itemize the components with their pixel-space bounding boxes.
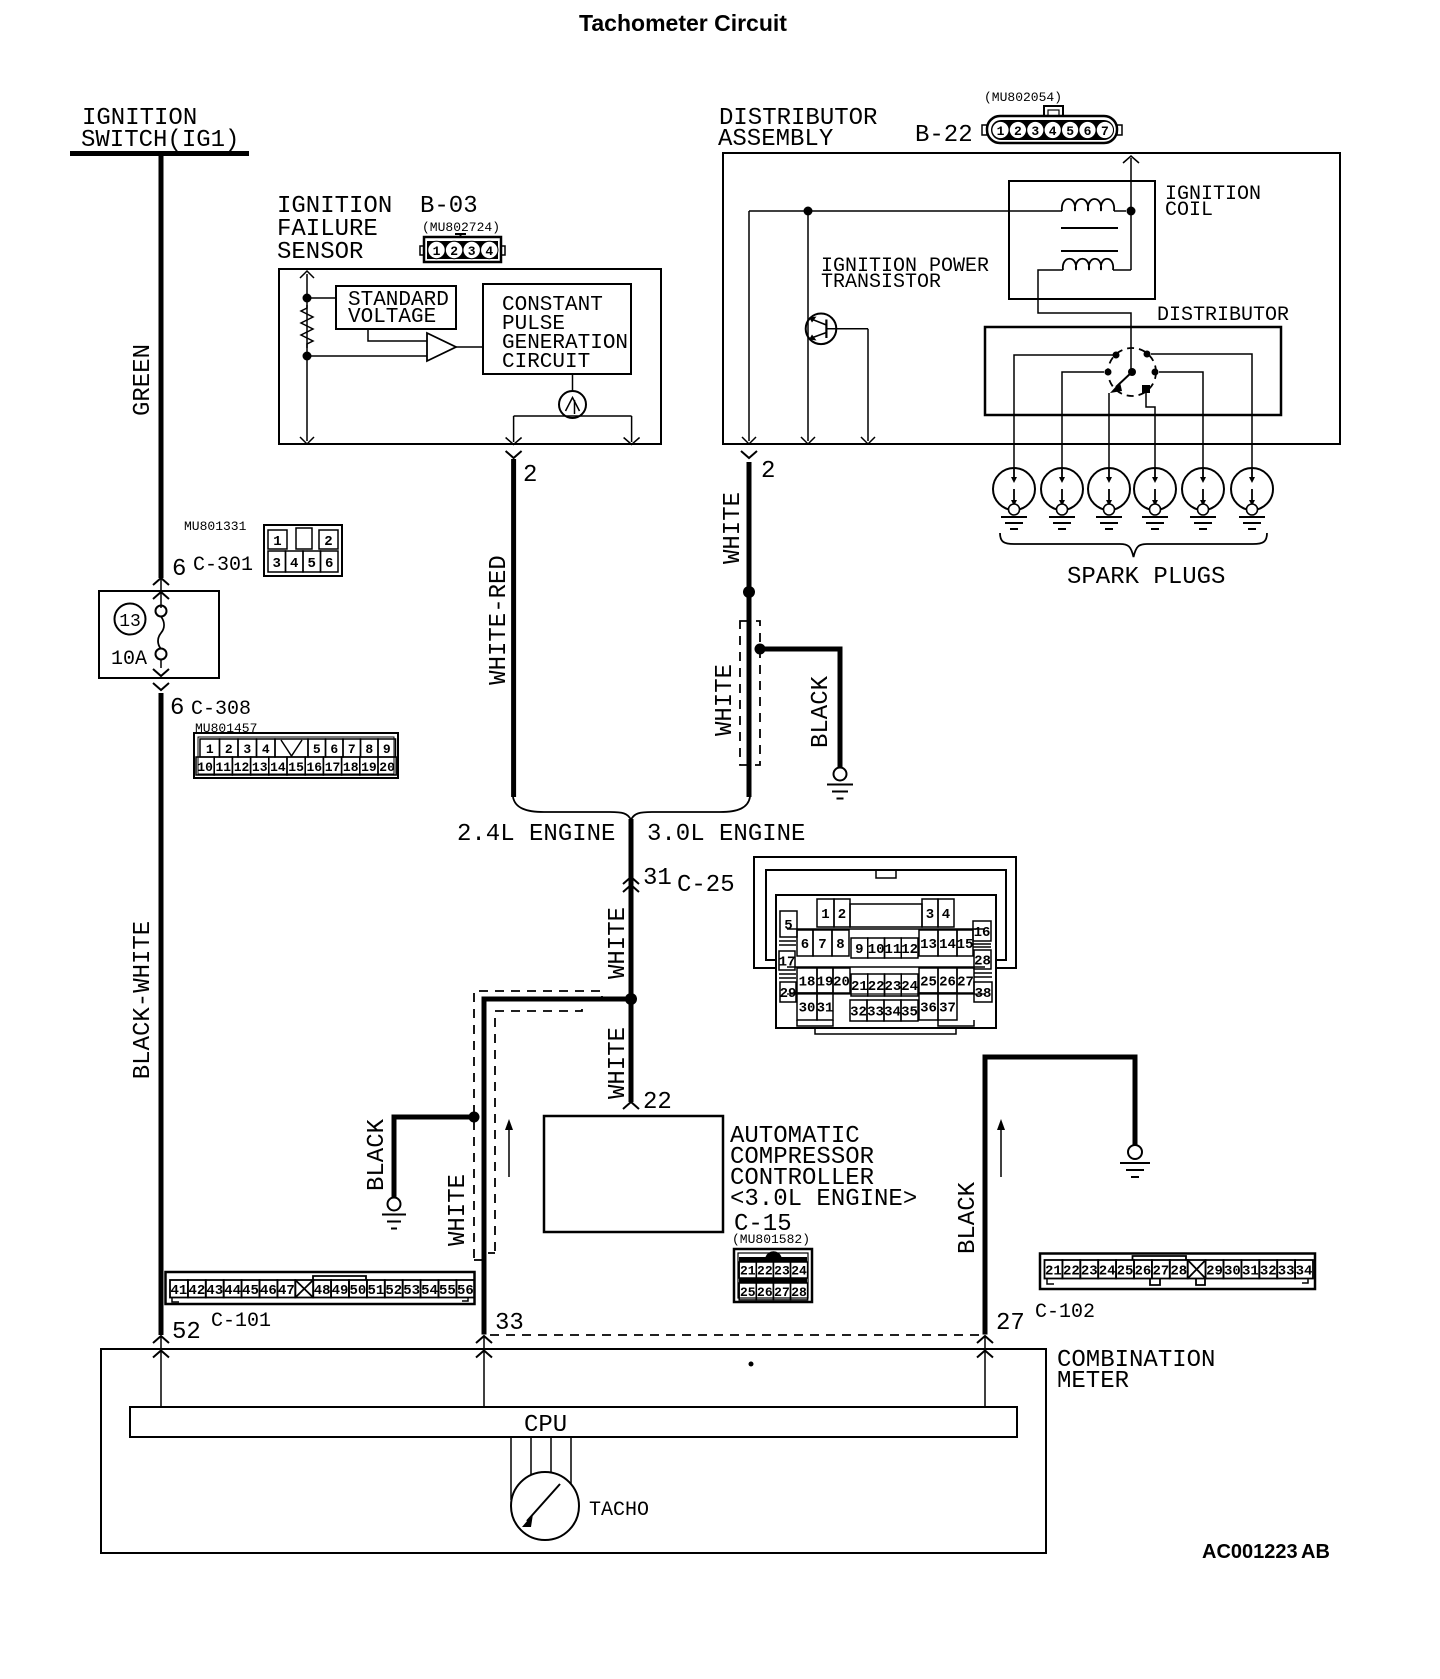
svg-text:DISTRIBUTOR: DISTRIBUTOR: [1157, 304, 1289, 327]
svg-text:22: 22: [868, 979, 885, 995]
svg-text:8: 8: [836, 937, 844, 953]
svg-text:28: 28: [1170, 1264, 1187, 1280]
svg-text:9: 9: [383, 742, 391, 757]
svg-text:24: 24: [1099, 1264, 1116, 1280]
svg-text:3: 3: [243, 742, 251, 757]
svg-text:17: 17: [325, 760, 341, 775]
svg-text:C-301: C-301: [193, 554, 253, 577]
svg-text:45: 45: [242, 1283, 259, 1299]
svg-text:5: 5: [1066, 124, 1074, 139]
svg-text:56: 56: [457, 1283, 474, 1299]
svg-text:TRANSISTOR: TRANSISTOR: [821, 271, 941, 294]
svg-text:11: 11: [884, 942, 901, 958]
svg-text:15: 15: [957, 937, 974, 953]
svg-text:2: 2: [761, 458, 775, 485]
svg-text:24: 24: [901, 979, 918, 995]
svg-text:23: 23: [774, 1264, 790, 1279]
svg-text:BLACK: BLACK: [808, 675, 835, 748]
svg-text:METER: METER: [1057, 1368, 1129, 1395]
svg-text:ASSEMBLY: ASSEMBLY: [718, 126, 833, 153]
svg-text:34: 34: [1296, 1264, 1313, 1280]
svg-text:22: 22: [643, 1089, 672, 1116]
svg-text:2: 2: [324, 534, 332, 550]
svg-text:1: 1: [273, 534, 281, 550]
svg-text:18: 18: [343, 760, 359, 775]
svg-text:CPU: CPU: [524, 1412, 567, 1439]
svg-text:35: 35: [901, 1005, 918, 1021]
svg-text:31: 31: [817, 1001, 834, 1017]
svg-text:6: 6: [170, 695, 184, 722]
svg-text:10A: 10A: [111, 648, 147, 671]
svg-text:22: 22: [1063, 1264, 1080, 1280]
svg-text:33: 33: [867, 1005, 884, 1021]
svg-text:32: 32: [1260, 1264, 1277, 1280]
svg-text:27: 27: [996, 1310, 1025, 1337]
svg-text:<3.0L ENGINE>: <3.0L ENGINE>: [730, 1186, 917, 1213]
svg-text:16: 16: [306, 760, 322, 775]
svg-text:4: 4: [1049, 124, 1057, 139]
svg-text:50: 50: [350, 1283, 367, 1299]
svg-text:WHITE: WHITE: [605, 1027, 632, 1099]
svg-text:C-101: C-101: [211, 1310, 271, 1333]
svg-text:6: 6: [172, 556, 186, 583]
svg-text:11: 11: [215, 760, 231, 775]
svg-text:18: 18: [799, 975, 816, 991]
svg-text:53: 53: [403, 1283, 420, 1299]
svg-text:32: 32: [850, 1005, 867, 1021]
svg-text:WHITE: WHITE: [605, 907, 632, 979]
svg-text:3: 3: [1031, 124, 1039, 139]
svg-text:5: 5: [307, 556, 315, 572]
svg-text:2: 2: [225, 742, 233, 757]
svg-text:30: 30: [1224, 1264, 1241, 1280]
svg-text:4: 4: [262, 742, 270, 757]
svg-text:21: 21: [851, 979, 868, 995]
svg-text:20: 20: [379, 760, 395, 775]
svg-text:21: 21: [740, 1264, 756, 1279]
svg-text:21: 21: [1045, 1264, 1062, 1280]
svg-text:7: 7: [1101, 124, 1109, 139]
svg-text:4: 4: [942, 907, 950, 923]
svg-text:30: 30: [799, 1001, 816, 1017]
svg-text:2: 2: [523, 462, 537, 489]
svg-text:C-308: C-308: [191, 698, 251, 721]
svg-text:19: 19: [361, 760, 377, 775]
svg-text:19: 19: [817, 975, 834, 991]
svg-text:31: 31: [643, 865, 672, 892]
svg-text:GREEN: GREEN: [130, 344, 157, 416]
svg-text:7: 7: [348, 742, 356, 757]
svg-text:B-03: B-03: [420, 193, 478, 220]
svg-text:46: 46: [260, 1283, 277, 1299]
svg-text:5: 5: [784, 918, 792, 934]
svg-text:29: 29: [1206, 1264, 1223, 1280]
svg-text:15: 15: [288, 760, 304, 775]
svg-text:25: 25: [920, 975, 937, 991]
svg-text:14: 14: [270, 760, 286, 775]
svg-text:52: 52: [385, 1283, 402, 1299]
svg-text:14: 14: [939, 937, 956, 953]
svg-text:26: 26: [1135, 1264, 1152, 1280]
svg-text:SWITCH(IG1): SWITCH(IG1): [81, 127, 239, 154]
svg-text:1: 1: [997, 124, 1005, 139]
svg-text:WHITE: WHITE: [712, 664, 739, 736]
svg-text:C-102: C-102: [1035, 1301, 1095, 1324]
svg-text:1: 1: [433, 244, 441, 259]
svg-text:B-22: B-22: [915, 122, 973, 149]
svg-text:(MU801582): (MU801582): [732, 1232, 810, 1247]
svg-text:10: 10: [868, 942, 885, 958]
svg-text:C-25: C-25: [677, 872, 735, 899]
svg-text:44: 44: [224, 1283, 241, 1299]
svg-text:COIL: COIL: [1165, 199, 1213, 222]
svg-text:54: 54: [421, 1283, 438, 1299]
svg-text:1: 1: [206, 742, 214, 757]
svg-text:4: 4: [485, 244, 493, 259]
svg-text:26: 26: [939, 975, 956, 991]
svg-text:BLACK: BLACK: [955, 1181, 982, 1254]
svg-text:13: 13: [119, 612, 141, 632]
svg-text:49: 49: [332, 1283, 349, 1299]
svg-text:(MU802724): (MU802724): [422, 220, 500, 235]
svg-text:2: 2: [450, 244, 458, 259]
svg-text:3: 3: [468, 244, 476, 259]
svg-text:52: 52: [172, 1319, 201, 1346]
svg-text:3: 3: [272, 556, 280, 572]
svg-text:7: 7: [818, 937, 826, 953]
svg-text:3: 3: [926, 907, 934, 923]
svg-text:2: 2: [838, 907, 846, 923]
svg-text:Tachometer Circuit: Tachometer Circuit: [579, 10, 787, 36]
svg-text:9: 9: [855, 942, 863, 958]
svg-text:12: 12: [234, 760, 250, 775]
svg-text:43: 43: [206, 1283, 223, 1299]
svg-text:6: 6: [325, 556, 333, 572]
svg-text:51: 51: [367, 1283, 384, 1299]
svg-text:CIRCUIT: CIRCUIT: [502, 351, 590, 374]
svg-text:16: 16: [974, 925, 991, 941]
svg-text:AC001223: AC001223: [1202, 1541, 1298, 1563]
svg-text:5: 5: [313, 742, 321, 757]
svg-text:6: 6: [801, 937, 809, 953]
svg-text:BLACK-WHITE: BLACK-WHITE: [130, 921, 157, 1079]
svg-text:WHITE: WHITE: [445, 1174, 472, 1246]
svg-text:WHITE: WHITE: [720, 492, 747, 564]
svg-text:SENSOR: SENSOR: [277, 239, 363, 266]
svg-text:2: 2: [1014, 124, 1022, 139]
svg-text:10: 10: [197, 760, 213, 775]
svg-text:4: 4: [290, 556, 298, 572]
svg-text:17: 17: [779, 955, 796, 971]
svg-text:33: 33: [1278, 1264, 1295, 1280]
svg-text:33: 33: [495, 1310, 524, 1337]
svg-text:6: 6: [330, 742, 338, 757]
svg-text:26: 26: [757, 1285, 773, 1300]
svg-text:27: 27: [957, 975, 974, 991]
svg-text:23: 23: [1081, 1264, 1098, 1280]
svg-text:34: 34: [884, 1005, 901, 1021]
svg-text:3.0L ENGINE: 3.0L ENGINE: [647, 821, 805, 848]
svg-text:TACHO: TACHO: [589, 1499, 649, 1522]
svg-text:27: 27: [774, 1285, 790, 1300]
svg-text:48: 48: [314, 1283, 331, 1299]
svg-text:VOLTAGE: VOLTAGE: [348, 306, 436, 329]
svg-text:31: 31: [1242, 1264, 1259, 1280]
svg-text:27: 27: [1152, 1264, 1169, 1280]
svg-text:AB: AB: [1301, 1541, 1330, 1563]
svg-text:25: 25: [1117, 1264, 1134, 1280]
svg-text:13: 13: [252, 760, 268, 775]
svg-text:BLACK: BLACK: [364, 1118, 391, 1191]
svg-text:(MU802054): (MU802054): [984, 90, 1062, 105]
svg-text:23: 23: [884, 979, 901, 995]
svg-text:SPARK PLUGS: SPARK PLUGS: [1067, 564, 1225, 591]
svg-text:25: 25: [740, 1285, 756, 1300]
svg-text:37: 37: [939, 1001, 956, 1017]
svg-text:47: 47: [278, 1283, 295, 1299]
svg-text:20: 20: [833, 975, 850, 991]
svg-text:2.4L ENGINE: 2.4L ENGINE: [457, 821, 615, 848]
svg-text:8: 8: [365, 742, 373, 757]
svg-text:36: 36: [920, 1001, 937, 1017]
svg-text:WHITE-RED: WHITE-RED: [486, 555, 513, 685]
svg-text:42: 42: [188, 1283, 205, 1299]
svg-text:22: 22: [757, 1264, 773, 1279]
svg-text:12: 12: [901, 942, 918, 958]
svg-text:28: 28: [791, 1285, 807, 1300]
svg-text:MU801331: MU801331: [184, 519, 247, 534]
svg-text:55: 55: [439, 1283, 456, 1299]
svg-text:41: 41: [171, 1283, 188, 1299]
svg-text:13: 13: [920, 937, 937, 953]
svg-text:24: 24: [791, 1264, 807, 1279]
svg-text:6: 6: [1084, 124, 1092, 139]
svg-text:1: 1: [821, 907, 829, 923]
